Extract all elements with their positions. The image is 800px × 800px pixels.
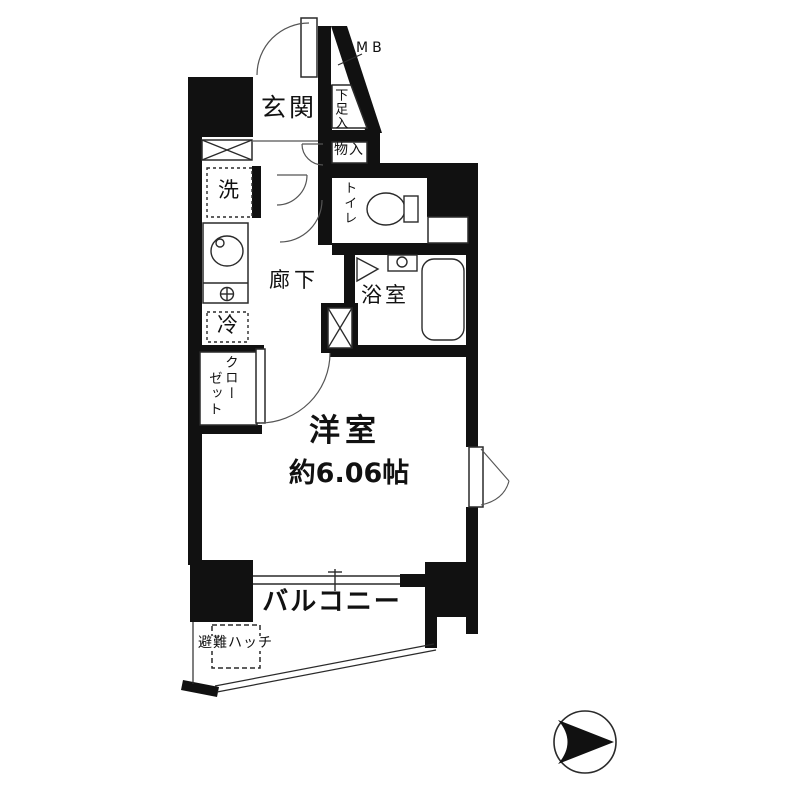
- wall-closet-bottom: [200, 425, 262, 434]
- label-closet-line2: ゼット: [206, 371, 221, 418]
- side-window-swing: [481, 449, 509, 505]
- washroom-door-arc: [277, 175, 307, 205]
- wall-window-stub: [400, 574, 425, 587]
- pillar-balcony-left: [190, 560, 253, 622]
- label-closet-line1: クロー: [222, 355, 237, 402]
- room-door-leaf: [256, 349, 265, 423]
- wall-toilet-bottom: [332, 243, 478, 255]
- wall-right-upper: [466, 165, 478, 447]
- wall-washroom-bar: [252, 166, 261, 218]
- label-western-room: 洋室: [288, 414, 402, 448]
- label-shoe-storage: 下足入: [332, 88, 346, 130]
- label-storage: 物入: [329, 143, 369, 158]
- bath-folding-door-icon: [357, 258, 378, 281]
- label-hallway: 廊下: [266, 269, 322, 292]
- label-bathroom: 浴室: [358, 284, 412, 307]
- pillar-right-extension: [425, 617, 437, 648]
- wall-bath-left: [344, 255, 355, 307]
- side-window-opening: [469, 447, 483, 507]
- wall-entry-right-bar: [318, 26, 331, 88]
- front-door-leaf: [301, 18, 317, 77]
- floor-plan-canvas: MB 玄関 下足入 物入 トイレ 洗 冷 廊下 浴室 クロー ゼット 洋室 約6…: [0, 0, 800, 800]
- pipe-space: [428, 217, 468, 243]
- label-balcony: バルコニー: [250, 588, 414, 617]
- pillar-balcony-right: [425, 562, 472, 617]
- toilet-bowl-icon: [367, 193, 405, 225]
- label-meter-box: MB: [356, 41, 386, 56]
- wall-left-outer: [188, 77, 202, 565]
- compass: [554, 711, 616, 773]
- label-escape-hatch: 避難ハッチ: [196, 636, 275, 651]
- balcony-diagonal-stub: [181, 680, 219, 697]
- label-washer: 洗: [218, 179, 239, 202]
- label-room-size: 約6.06帖: [278, 459, 420, 489]
- label-genkan: 玄関: [255, 94, 323, 122]
- label-toilet: トイレ: [341, 181, 355, 226]
- wall-toilet-top: [320, 163, 478, 178]
- bath-faucet-icon: [397, 257, 407, 267]
- toilet-door-arc: [280, 200, 322, 242]
- vanity-basin-icon: [211, 236, 243, 266]
- vanity-faucet-icon: [216, 239, 224, 247]
- floor-plan-drawing: [0, 0, 800, 800]
- bathtub-icon: [422, 259, 464, 340]
- label-refrigerator: 冷: [217, 314, 238, 337]
- wall-topleft-block: [188, 77, 253, 137]
- toilet-tank-icon: [404, 196, 418, 222]
- wall-toilet-right-block: [427, 177, 468, 217]
